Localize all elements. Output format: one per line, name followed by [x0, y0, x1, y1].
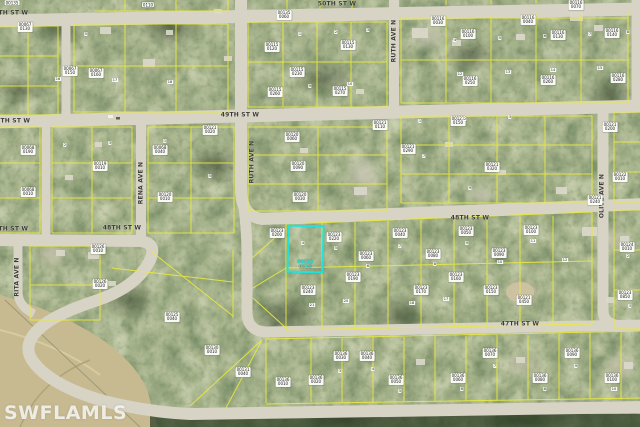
parcel-id-label: 001210200 [603, 122, 618, 132]
parcel-id-label: 001260020 [93, 279, 108, 289]
lot-number-label: 3 [366, 28, 369, 32]
parcel-id-label: 001360020 [309, 375, 324, 385]
lot-number-label: 2 [463, 117, 466, 121]
parcel-id-label: 001200060 [285, 132, 300, 142]
parcel-id-label: 000680190 [21, 145, 36, 155]
street-label: 49TH ST W [0, 118, 30, 125]
lot-number-label: 6 [460, 387, 463, 391]
parcel-id-label: 001230080 [426, 249, 441, 259]
parcel-id-label: 001230060 [359, 251, 374, 261]
street-label: RITA AVE N [14, 257, 21, 296]
lot-number-label: 4 [371, 367, 374, 371]
parcel-id-label: 001210320 [485, 162, 500, 172]
parcel-id-label: 000680010 [21, 187, 36, 197]
parcel-id-label: 001230200 [270, 228, 285, 238]
street-label: RUTH AVE N [391, 20, 398, 63]
lot-number-label: 17 [443, 297, 449, 301]
parcel-id-label: 001210110 [373, 120, 388, 130]
parcel-id-label: 001230190 [346, 272, 361, 282]
lot-number-label: 8 [543, 387, 546, 391]
street-label: RUTH AVE N [249, 141, 256, 184]
lot-number-label: 5 [498, 36, 501, 40]
parcel-id-label: 000670150 [63, 66, 78, 76]
lot-number-label: 2 [63, 143, 66, 147]
parcel-id-label: 000670160 [89, 68, 104, 78]
parcel-id-label: 001190010 [93, 161, 108, 171]
lot-number-label: 1 [418, 119, 421, 123]
parcel-id-label: 001160070 [569, 0, 584, 10]
lot-number-label: 10 [497, 260, 503, 264]
lot-number-label: 18 [167, 80, 173, 84]
lot-number-label: 7 [422, 154, 425, 158]
lot-number-label: 18 [409, 301, 415, 305]
parcel-id-label: 001210020 [203, 125, 218, 135]
street-label: 47TH ST W [501, 321, 539, 328]
lot-number-label: 6 [366, 264, 369, 268]
lot-number-label: 3 [508, 115, 511, 119]
lot-number-label: 5 [84, 32, 87, 36]
parcel-id-label: 001200090 [291, 161, 306, 171]
parcel-id-label: 001230040 [393, 228, 408, 238]
parcel-id-label: 001150260 [268, 87, 283, 97]
lot-number-label: 8 [433, 262, 436, 266]
lot-number-label: 9 [574, 364, 577, 368]
parcel-id-label: 001360040 [360, 351, 375, 361]
mls-watermark: SWFLAMLS [4, 402, 127, 424]
parcel-id-label: 001200030 [293, 192, 308, 202]
parcel-id-label: 001160130 [551, 30, 566, 40]
highlighted-parcel-outline: 00123 0210 [287, 225, 325, 274]
parcel-id-label: 001160040 [521, 15, 536, 25]
lot-number-label: 1 [163, 139, 166, 143]
lot-number-label: 8 [626, 30, 629, 34]
parcel-id-label: 001230150 [484, 285, 499, 295]
parcel-id-label: 001160030 [431, 16, 446, 26]
street-label: 48TH ST W [451, 215, 489, 222]
parcel-id-label: 001250040 [165, 312, 180, 322]
lot-number-label: 14 [550, 68, 556, 72]
lot-number-label: 15 [597, 66, 603, 70]
parcel-id-label: 001210240 [588, 195, 603, 205]
lot-number-label: 13 [505, 70, 511, 74]
lot-number-label: 12 [562, 258, 568, 262]
parcel-id-label: 001230240 [301, 285, 316, 295]
parcel-id-label: 001150120 [265, 42, 280, 52]
lot-number-label: 11 [530, 239, 536, 243]
parcel-id-label: 0110 [142, 2, 154, 7]
lot-number-label: 5 [398, 389, 401, 393]
lot-number-label: 9 [308, 84, 311, 88]
lot-number-label: 10 [611, 387, 617, 391]
parcel-id-label: 001230090 [492, 248, 507, 258]
parcel-id-label: 00135 [5, 0, 20, 5]
parcel-id-label: 001230050 [459, 226, 474, 236]
parcel-id-label: 001260010 [91, 244, 106, 254]
parcel-id-label: 001360090 [565, 348, 580, 358]
highlighted-parcel-id: 00123 0210 [297, 260, 313, 270]
lot-number-label: 2 [334, 30, 337, 34]
lot-number-label: 3 [338, 369, 341, 373]
parcel-id-label: 001350060 [277, 10, 292, 20]
parcel-id-label: 001160250 [463, 76, 478, 86]
parcel-id-label: 001230850 [618, 290, 633, 300]
parcel-id-label: 001200010 [158, 192, 173, 202]
parcel-id-label: 001150230 [290, 67, 305, 77]
street-label: 50TH ST W [318, 1, 356, 8]
aerial-parcel-map[interactable]: 50TH ST W50TH ST W49TH ST W49TH ST W48TH… [0, 0, 640, 427]
street-label: 49TH ST W [221, 112, 259, 119]
map-labels: 50TH ST W50TH ST W49TH ST W49TH ST W48TH… [0, 0, 640, 427]
parcel-id-label: 000670130 [18, 22, 33, 32]
parcel-id-label: 001230170 [414, 285, 429, 295]
parcel-id-label: 001160260 [541, 75, 556, 85]
parcel-id-label: 001360070 [483, 348, 498, 358]
lot-number-label: 1 [298, 32, 301, 36]
parcel-id-label: 001300010 [205, 345, 220, 355]
lot-number-label: 7 [588, 32, 591, 36]
parcel-id-label: 001310040 [236, 367, 251, 377]
parcel-id-label: 001150270 [333, 86, 348, 96]
lot-number-label: 9 [468, 186, 471, 190]
street-label: 48TH ST W [0, 226, 28, 233]
lot-number-label: 2 [626, 254, 629, 258]
street-label: 50TH ST W [0, 10, 28, 17]
parcel-id-label: 001160100 [461, 29, 476, 39]
parcel-id-label: 000680040 [153, 145, 168, 155]
lot-number-label: 4 [453, 38, 456, 42]
lot-number-label: 16 [55, 77, 61, 81]
street-label: 48TH ST W [103, 225, 141, 232]
lot-number-label: 7 [398, 244, 401, 248]
lot-number-label: 7 [493, 364, 496, 368]
parcel-id-label: 001240010 [620, 242, 635, 252]
parcel-id-label: 001360060 [451, 373, 466, 383]
lot-number-label: 20 [343, 299, 349, 303]
lot-number-label: 21 [309, 303, 315, 307]
parcel-id-label: 001230220 [327, 232, 342, 242]
parcel-id-label: 001150130 [341, 40, 356, 50]
lot-number-label: 6 [543, 34, 546, 38]
parcel-id-label: 001360010 [276, 377, 291, 387]
parcel-id-label: 001160140 [605, 28, 620, 38]
lot-number-label: 5 [334, 246, 337, 250]
lot-number-label: 10 [347, 82, 353, 86]
lot-number-label: 3 [628, 304, 631, 308]
parcel-id-label: 001210290 [401, 144, 416, 154]
parcel-id-label: 001360030 [334, 351, 349, 361]
lot-number-label: 5 [208, 174, 211, 178]
lot-number-label: 9 [465, 241, 468, 245]
lot-number-label: 17 [112, 78, 118, 82]
lot-number-label: 3 [108, 141, 111, 145]
parcel-id-label: 001160280 [611, 73, 626, 83]
parcel-id-label: 001210450 [517, 295, 532, 305]
street-label: RENA AVE N [138, 162, 145, 205]
parcel-id-label: 001230100 [524, 225, 539, 235]
parcel-id-label: 001360050 [389, 375, 404, 385]
parcel-id-label: 001220010 [613, 172, 628, 182]
parcel-id-label: 001360080 [533, 373, 548, 383]
lot-number-label: 12 [457, 72, 463, 76]
parcel-id-label: 001360100 [605, 373, 620, 383]
parcel-id-label: 001230160 [449, 272, 464, 282]
